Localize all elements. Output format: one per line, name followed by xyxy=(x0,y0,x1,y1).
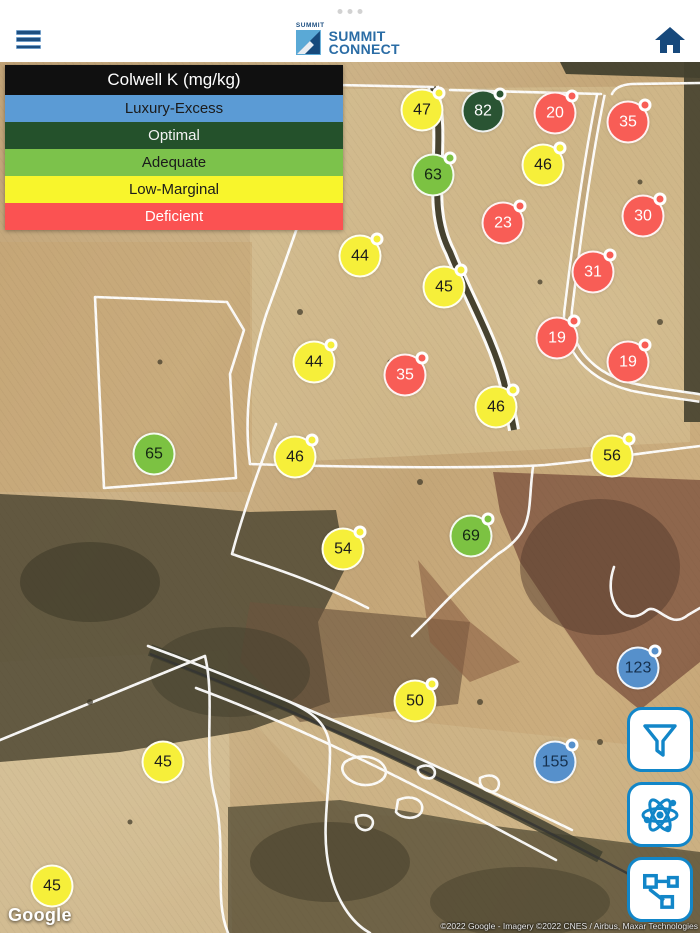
marker-value: 69 xyxy=(462,527,480,545)
marker-value: 23 xyxy=(494,214,512,232)
map-marker[interactable]: 47 xyxy=(401,89,444,132)
marker-value: 47 xyxy=(413,101,431,119)
map-marker[interactable]: 123 xyxy=(617,647,660,690)
hamburger-menu-icon[interactable] xyxy=(16,30,41,49)
legend-row-deficient: Deficient xyxy=(5,203,343,230)
map-marker[interactable]: 63 xyxy=(412,154,455,197)
map-marker[interactable]: 30 xyxy=(622,195,665,238)
science-button[interactable] xyxy=(627,782,693,847)
map-marker[interactable]: 19 xyxy=(536,317,579,360)
sample-point-badge-icon xyxy=(444,152,457,165)
map-attribution: ©2022 Google - Imagery ©2022 CNES / Airb… xyxy=(440,921,698,931)
map-marker[interactable]: 65 xyxy=(133,433,176,476)
map-marker[interactable]: 45 xyxy=(142,741,185,784)
sample-point-badge-icon xyxy=(426,678,439,691)
sample-point-badge-icon xyxy=(455,264,468,277)
sample-point-badge-icon xyxy=(482,513,495,526)
sample-point-badge-icon xyxy=(494,88,507,101)
sample-point-badge-icon xyxy=(554,142,567,155)
sample-point-badge-icon xyxy=(566,90,579,103)
marker-value: 20 xyxy=(546,104,564,122)
filter-button[interactable] xyxy=(627,707,693,772)
sample-point-badge-icon xyxy=(654,193,667,206)
marker-value: 45 xyxy=(154,753,172,771)
sample-point-badge-icon xyxy=(604,249,617,262)
sample-point-badge-icon xyxy=(507,384,520,397)
marker-value: 45 xyxy=(43,877,61,895)
marker-value: 46 xyxy=(487,398,505,416)
legend-row-luxury-excess: Luxury-Excess xyxy=(5,95,343,122)
satellite-map[interactable]: Colwell K (mg/kg) Luxury-ExcessOptimalAd… xyxy=(0,62,700,933)
marker-value: 63 xyxy=(424,166,442,184)
map-marker[interactable]: 155 xyxy=(534,741,577,784)
map-marker[interactable]: 54 xyxy=(322,528,365,571)
sample-point-badge-icon xyxy=(354,526,367,539)
marker-value: 50 xyxy=(406,692,424,710)
sample-point-badge-icon xyxy=(568,315,581,328)
legend-row-optimal: Optimal xyxy=(5,122,343,149)
marker-value: 35 xyxy=(619,113,637,131)
google-logo: Google xyxy=(8,905,72,926)
legend-title: Colwell K (mg/kg) xyxy=(5,65,343,95)
marker-value: 44 xyxy=(351,247,369,265)
sample-point-badge-icon xyxy=(649,645,662,658)
map-marker[interactable]: 44 xyxy=(293,341,336,384)
marker-value: 19 xyxy=(619,353,637,371)
home-icon[interactable] xyxy=(654,26,686,54)
legend-rows: Luxury-ExcessOptimalAdequateLow-Marginal… xyxy=(5,95,343,230)
status-dots-icon xyxy=(338,9,363,14)
marker-value: 30 xyxy=(634,207,652,225)
app-header: SUMMIT SUMMIT CONNECT xyxy=(0,0,700,62)
marker-value: 19 xyxy=(548,329,566,347)
logo-text: SUMMIT CONNECT xyxy=(329,30,400,56)
marker-value: 155 xyxy=(542,753,569,771)
marker-value: 82 xyxy=(474,102,492,120)
network-button[interactable] xyxy=(627,857,693,922)
summit-logo-mark-icon xyxy=(296,30,321,55)
sample-point-badge-icon xyxy=(514,200,527,213)
logo-brand-small: SUMMIT xyxy=(296,22,325,29)
sample-point-badge-icon xyxy=(433,87,446,100)
map-marker[interactable]: 45 xyxy=(423,266,466,309)
legend-row-adequate: Adequate xyxy=(5,149,343,176)
legend: Colwell K (mg/kg) Luxury-ExcessOptimalAd… xyxy=(5,65,343,230)
network-nodes-icon xyxy=(639,869,681,911)
marker-value: 56 xyxy=(603,447,621,465)
marker-value: 31 xyxy=(584,263,602,281)
marker-value: 54 xyxy=(334,540,352,558)
sample-point-badge-icon xyxy=(325,339,338,352)
map-marker[interactable]: 50 xyxy=(394,680,437,723)
sample-point-badge-icon xyxy=(416,352,429,365)
map-marker[interactable]: 44 xyxy=(339,235,382,278)
map-marker[interactable]: 46 xyxy=(522,144,565,187)
map-marker[interactable]: 46 xyxy=(274,436,317,479)
sample-point-badge-icon xyxy=(639,99,652,112)
map-marker[interactable]: 19 xyxy=(607,341,650,384)
map-marker[interactable]: 45 xyxy=(31,865,74,908)
map-marker[interactable]: 46 xyxy=(475,386,518,429)
marker-value: 35 xyxy=(396,366,414,384)
marker-value: 46 xyxy=(286,448,304,466)
filter-funnel-icon xyxy=(639,719,681,761)
map-marker[interactable]: 31 xyxy=(572,251,615,294)
marker-value: 65 xyxy=(145,445,163,463)
marker-value: 46 xyxy=(534,156,552,174)
marker-value: 45 xyxy=(435,278,453,296)
map-marker[interactable]: 82 xyxy=(462,90,505,133)
sample-point-badge-icon xyxy=(566,739,579,752)
map-marker[interactable]: 23 xyxy=(482,202,525,245)
map-marker[interactable]: 20 xyxy=(534,92,577,135)
map-marker[interactable]: 69 xyxy=(450,515,493,558)
sample-point-badge-icon xyxy=(623,433,636,446)
legend-row-low-marginal: Low-Marginal xyxy=(5,176,343,203)
sample-point-badge-icon xyxy=(306,434,319,447)
marker-value: 44 xyxy=(305,353,323,371)
marker-value: 123 xyxy=(625,659,652,677)
map-toolbar xyxy=(627,707,693,922)
summit-connect-logo: SUMMIT SUMMIT CONNECT xyxy=(296,22,400,56)
sample-point-badge-icon xyxy=(639,339,652,352)
map-marker[interactable]: 35 xyxy=(607,101,650,144)
map-marker[interactable]: 35 xyxy=(384,354,427,397)
atom-icon xyxy=(638,793,682,837)
map-marker[interactable]: 56 xyxy=(591,435,634,478)
sample-point-badge-icon xyxy=(371,233,384,246)
